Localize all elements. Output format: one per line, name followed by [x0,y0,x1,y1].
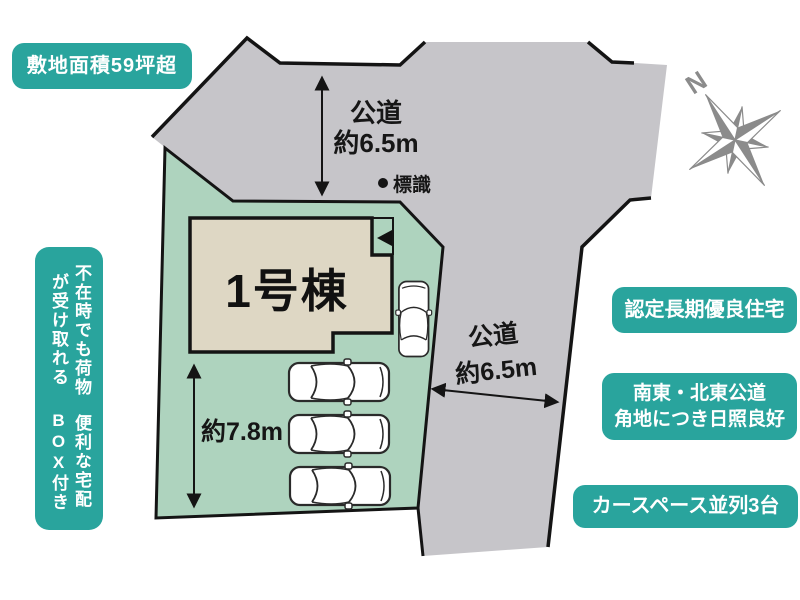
site-area-badge: 敷地面積59坪超 [12,43,192,89]
depth-dim-label: 約7.8m [201,417,283,446]
site-area-badge-text: 敷地面積59坪超 [27,53,177,80]
corner-lot-badge-line2: 角地につき日照良好 [614,407,785,433]
delivery-box-badge-line1: 不在時でも荷物が受け取れる [46,257,92,404]
certified-housing-badge: 認定長期優良住宅 [612,287,797,333]
compass-north-label: N [680,65,712,100]
car-parked-3 [290,463,390,509]
car-parked-1 [289,359,389,405]
road-top-width: 約6.5m [333,128,418,158]
house-label: 1号棟 [225,265,349,317]
corner-lot-badge-line1: 南東・北東公道 [633,381,766,407]
corner-lot-badge: 南東・北東公道 角地につき日照良好 [602,373,797,440]
delivery-box-badge: 不在時でも荷物が受け取れる 便利な宅配BOX付き [35,247,103,530]
delivery-box-badge-line2: 便利な宅配BOX付き [46,404,92,520]
road-right-name: 公道 [467,319,520,353]
sign-dot-icon [378,178,388,188]
car-space-badge-text: カースペース並列3台 [592,493,780,520]
road-top-name: 公道 [350,98,402,128]
car-space-badge: カースペース並列3台 [573,485,798,528]
certified-housing-badge-text: 認定長期優良住宅 [625,297,785,324]
compass-rose-icon [660,65,800,214]
site-plan-diagram: 1号棟 公道 約6.5m 標識 公道 約6.5m 約7.8m [0,0,800,600]
sign-label: 標識 [393,173,431,196]
car-parked-side [396,282,432,357]
car-parked-2 [289,411,389,457]
